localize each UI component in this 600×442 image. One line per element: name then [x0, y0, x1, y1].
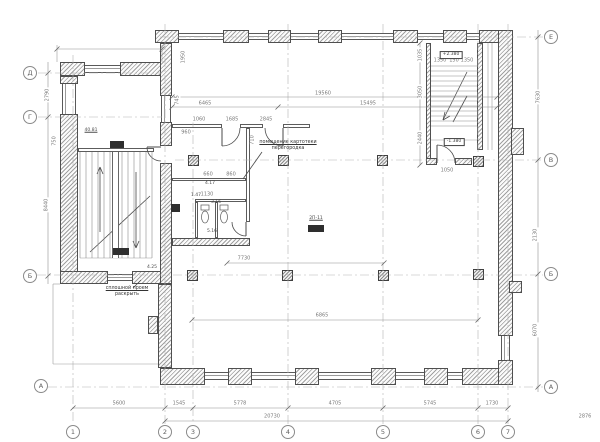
dimension-text: 2130 — [534, 228, 539, 243]
dim-tick — [506, 406, 511, 411]
room-stamp — [171, 204, 180, 212]
dim-tick — [225, 261, 230, 266]
toilet-bowl — [202, 211, 209, 223]
window — [448, 372, 462, 380]
room-tag: 4.25 — [147, 266, 157, 271]
dimension-text: 3050 — [419, 85, 424, 100]
room-stamp — [110, 141, 124, 148]
wall-segment — [223, 30, 249, 43]
wall-segment — [60, 271, 108, 284]
dim-tick — [418, 41, 423, 46]
window — [252, 372, 295, 380]
dim-tick — [418, 163, 423, 168]
wall-segment — [424, 368, 448, 385]
wall-segment — [371, 368, 396, 385]
toilet-tank — [201, 205, 209, 210]
wall-segment — [318, 30, 342, 43]
dim-tick — [381, 406, 386, 411]
dimension-text: 4705 — [328, 402, 343, 407]
grid-bubble-Б: Б — [23, 269, 37, 283]
partition-wall — [172, 124, 222, 128]
window — [249, 33, 268, 40]
dim-tick — [536, 35, 541, 40]
door-arc — [222, 128, 240, 146]
dimension-text: 1730 — [485, 402, 500, 407]
floor-plan: помещение картотеки перегородка сплошной… — [0, 0, 600, 442]
dimension-text: 710 — [251, 134, 256, 146]
column — [282, 270, 293, 281]
wall-segment — [228, 368, 252, 385]
level-label: -1.380 — [444, 138, 465, 146]
wall-segment — [268, 30, 291, 43]
wall-segment — [295, 368, 319, 385]
dimension-text: 1950 — [182, 50, 187, 65]
grid-bubble-Б: Б — [544, 267, 558, 281]
dimension-text: 1130 — [200, 193, 215, 198]
dimension-text: 750 — [53, 135, 58, 147]
wall-segment — [443, 30, 467, 43]
dimension-text: 860 — [225, 173, 237, 178]
grid-bubble-6: 6 — [471, 425, 485, 439]
window — [396, 372, 424, 380]
dim-tick — [163, 406, 168, 411]
window — [467, 33, 479, 40]
room-tag: 3.16 — [211, 201, 221, 206]
dimension-text: 6865 — [315, 314, 330, 319]
door-arc — [437, 145, 455, 163]
window — [418, 33, 443, 40]
window — [108, 274, 132, 281]
dim-tick — [46, 115, 51, 120]
room-tag: 4.17 — [205, 182, 215, 187]
grid-bubble-Е: Е — [544, 30, 558, 44]
grid-bubble-Г: Г — [23, 110, 37, 124]
dimension-text: 19560 — [314, 92, 332, 97]
wall-segment — [148, 316, 158, 334]
wall-segment — [509, 281, 522, 293]
column — [187, 270, 198, 281]
wall-segment — [498, 360, 513, 385]
callout-partition-note: помещение картотеки перегородка — [259, 140, 316, 153]
room-tag: 2П-11 — [309, 217, 323, 222]
window — [179, 33, 223, 40]
leader-or-arrow-line — [136, 241, 139, 248]
grid-bubble-В: В — [544, 153, 558, 167]
wall-segment — [60, 62, 85, 76]
wall-segment — [60, 76, 78, 84]
column — [473, 156, 484, 167]
stair-stringer — [112, 152, 119, 258]
partition-wall — [240, 124, 263, 128]
grid-bubble-А: А — [34, 379, 48, 393]
dimension-text: 5778 — [233, 402, 248, 407]
window — [205, 372, 228, 380]
dimension-text: 6070 — [534, 323, 539, 338]
column — [278, 155, 289, 166]
dimension-text: 2876 — [578, 415, 593, 420]
dimension-text: 1035 — [419, 48, 424, 63]
dim-tick — [55, 47, 60, 52]
toilet-tank — [220, 205, 228, 210]
dimension-text: 1060 — [192, 118, 207, 123]
partition-wall — [195, 202, 198, 238]
level-label: +2.380 — [440, 51, 463, 59]
room-tag: 40.81 — [85, 129, 98, 134]
dim-tick — [46, 274, 51, 279]
window — [501, 336, 510, 360]
column — [473, 269, 484, 280]
grid-bubble-5: 5 — [376, 425, 390, 439]
grid-bubble-2: 2 — [158, 425, 172, 439]
dimension-text: 20730 — [263, 415, 281, 420]
wall-segment — [172, 238, 250, 246]
grid-bubble-4: 4 — [281, 425, 295, 439]
window — [161, 96, 171, 122]
dimension-text: 1685 — [225, 118, 240, 123]
dim-tick — [286, 406, 291, 411]
room-tag: 1.47 — [191, 194, 201, 199]
dimension-text: 5600 — [112, 402, 127, 407]
dimension-text: 1050 — [440, 169, 455, 174]
dimension-text: 1350 — [460, 59, 475, 64]
wall-segment — [160, 163, 172, 284]
toilet-bowl — [221, 211, 228, 223]
callout-line-2: перегородка — [259, 146, 316, 152]
dim-tick — [276, 105, 281, 110]
wall-segment — [160, 122, 172, 146]
dimension-text: 660 — [202, 173, 214, 178]
window — [85, 65, 120, 73]
window — [62, 84, 76, 114]
door-arc — [232, 222, 246, 236]
room-stamp — [308, 225, 324, 232]
dimension-text: 6465 — [198, 102, 213, 107]
grid-bubble-1: 1 — [66, 425, 80, 439]
opening-note: сплошной проем раскрыть — [106, 286, 149, 299]
dim-tick — [536, 385, 541, 390]
dimension-text: 7730 — [237, 257, 252, 262]
dim-tick — [476, 318, 481, 323]
dimension-text: 1545 — [172, 402, 187, 407]
wall-segment — [455, 158, 472, 165]
wall-segment — [155, 30, 179, 43]
leader-or-arrow-line — [133, 241, 136, 248]
column — [378, 270, 389, 281]
grid-bubble-7: 7 — [501, 425, 515, 439]
room-tag: 5.16 — [207, 230, 217, 235]
wall-segment — [511, 128, 524, 155]
partition-wall — [283, 124, 310, 128]
wall-segment — [160, 368, 205, 385]
wall-segment — [393, 30, 418, 43]
wall-segment — [120, 62, 162, 76]
dimension-text: 2440 — [419, 131, 424, 146]
grid-bubble-А: А — [544, 380, 558, 394]
leader-or-arrow-line — [90, 196, 150, 252]
leader-or-arrow-line — [97, 167, 100, 174]
window — [291, 33, 318, 40]
grid-bubble-Д: Д — [23, 66, 37, 80]
dim-tick — [46, 71, 51, 76]
leader-or-arrow-line — [100, 167, 103, 174]
dim-tick — [190, 318, 195, 323]
dim-tick — [506, 419, 511, 424]
dimension-text: 2845 — [259, 118, 274, 123]
leader-or-arrow-line — [443, 116, 450, 120]
wall-segment — [158, 284, 172, 368]
dimension-text: 745 — [176, 94, 181, 106]
dimension-text: 150 — [448, 59, 460, 64]
dimension-text: 2790 — [46, 88, 51, 103]
wall-segment — [477, 43, 483, 150]
dim-tick — [382, 261, 387, 266]
wall-segment — [426, 158, 437, 165]
wall-segment — [60, 114, 78, 284]
dim-tick — [476, 406, 481, 411]
leader-or-arrow-line — [443, 72, 467, 120]
dimension-text: 8440 — [45, 198, 50, 213]
dimension-text: 5745 — [423, 402, 438, 407]
leader-or-arrow-line — [443, 112, 445, 120]
dim-tick — [71, 406, 76, 411]
dim-tick — [536, 158, 541, 163]
dimension-text: 15495 — [359, 102, 377, 107]
column — [377, 155, 388, 166]
dim-tick — [536, 272, 541, 277]
opening-note-line-2: раскрыть — [106, 292, 149, 298]
dim-tick — [191, 406, 196, 411]
grid-bubble-3: 3 — [186, 425, 200, 439]
room-stamp — [113, 248, 129, 255]
window — [342, 33, 393, 40]
wall-segment — [160, 43, 172, 96]
dimension-text: 1350 — [433, 59, 448, 64]
wall-segment — [426, 43, 431, 165]
dimension-text: 960 — [180, 131, 192, 136]
dim-tick — [163, 419, 168, 424]
window — [319, 372, 371, 380]
column — [188, 155, 199, 166]
dimension-text: 7630 — [537, 90, 542, 105]
leader-or-arrow-line — [453, 96, 467, 122]
